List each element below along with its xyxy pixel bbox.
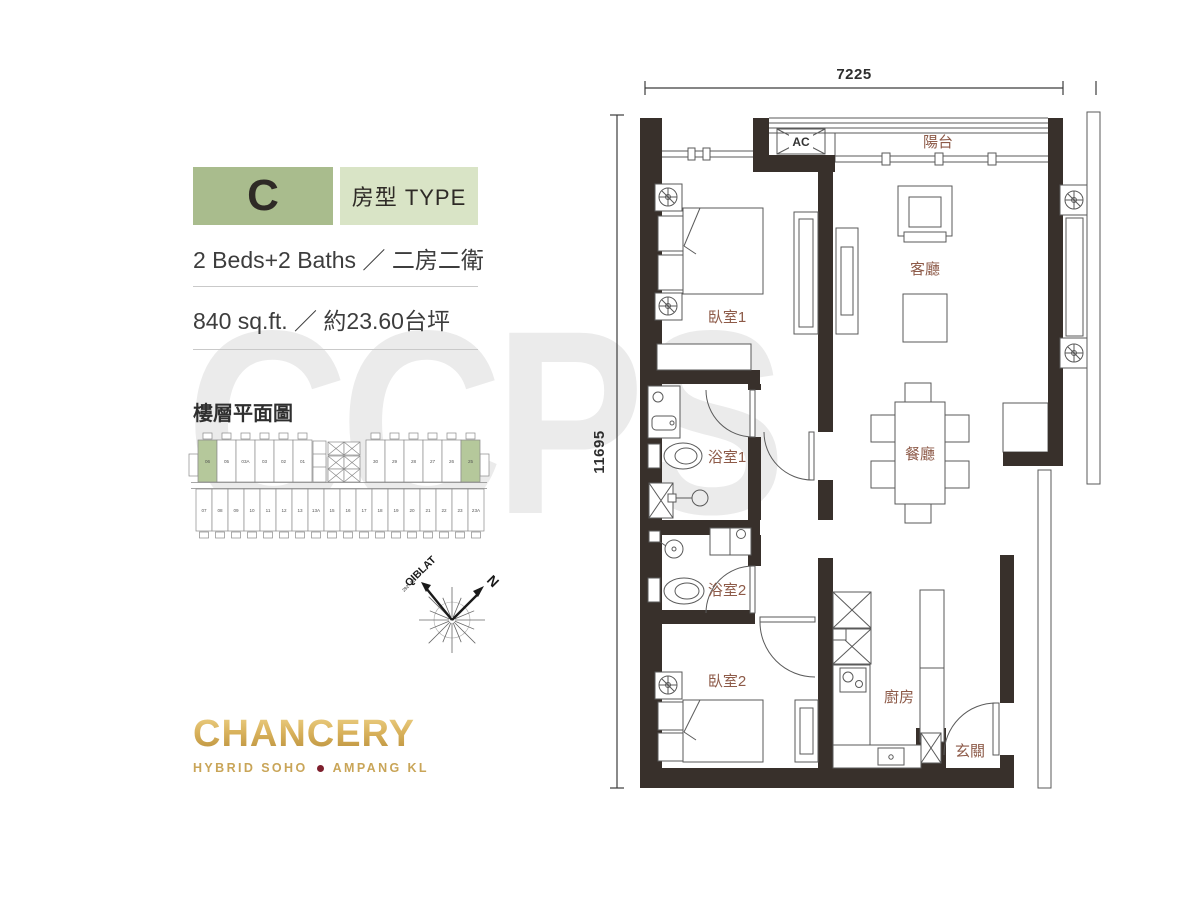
svg-text:20: 20 bbox=[409, 508, 415, 513]
svg-text:13: 13 bbox=[297, 508, 303, 513]
keyplan-unit-27: 27 bbox=[423, 433, 442, 482]
svg-text:19: 19 bbox=[393, 508, 399, 513]
svg-text:08: 08 bbox=[217, 508, 223, 513]
unit-type-badges: C 房型 TYPE bbox=[193, 167, 478, 225]
keyplan-unit-05: 05 bbox=[217, 433, 236, 482]
qiblat-arrow: QIBLAT 292° 32' bbox=[401, 554, 452, 620]
keyplan-unit-03A: 03A bbox=[236, 433, 255, 482]
keyplan-unit-01: 01 bbox=[293, 433, 312, 482]
room-label-living: 客廳 bbox=[910, 260, 940, 278]
room-label-bath2: 浴室2 bbox=[708, 582, 746, 599]
keyplan-unit-22: 22 bbox=[436, 489, 452, 538]
keyplan-unit-30: 30 bbox=[366, 433, 385, 482]
keyplan-lift-core bbox=[313, 441, 360, 482]
tagline-dot-icon bbox=[317, 765, 324, 772]
bedroom1-furniture bbox=[655, 184, 818, 370]
svg-text:09: 09 bbox=[233, 508, 239, 513]
room-label-foyer: 玄關 bbox=[955, 743, 985, 760]
svg-text:03: 03 bbox=[262, 459, 268, 464]
area-text: 840 sq.ft. ／ 約23.60台坪 bbox=[193, 302, 450, 336]
svg-text:18: 18 bbox=[377, 508, 383, 513]
svg-text:07: 07 bbox=[201, 508, 207, 513]
keyplan-unit-06: 06 bbox=[198, 433, 217, 482]
svg-text:23: 23 bbox=[457, 508, 463, 513]
keyplan-unit-18: 18 bbox=[372, 489, 388, 538]
svg-text:05: 05 bbox=[224, 459, 230, 464]
keyplan-unit-23A: 23A bbox=[468, 489, 484, 538]
windows-and-louvres bbox=[662, 118, 1048, 165]
dimension-height: 11695 bbox=[591, 430, 608, 473]
svg-text:25: 25 bbox=[468, 459, 474, 464]
north-label: N bbox=[484, 572, 502, 590]
svg-text:26: 26 bbox=[449, 459, 455, 464]
keyplan-unit-12: 12 bbox=[276, 489, 292, 538]
svg-text:13A: 13A bbox=[312, 508, 321, 513]
bathroom1-fixtures bbox=[648, 386, 708, 518]
room-label-bedroom2: 臥室2 bbox=[708, 673, 746, 690]
svg-text:23A: 23A bbox=[472, 508, 481, 513]
unit-type-letter-badge: C bbox=[193, 167, 333, 225]
room-label-balcony: 陽台 bbox=[923, 134, 953, 151]
keyplan-unit-21: 21 bbox=[420, 489, 436, 538]
keyplan-unit-02: 02 bbox=[274, 433, 293, 482]
unit-type-label-badge: 房型 TYPE bbox=[340, 167, 478, 225]
keyplan-diagram: 060503A030201302928272625070809101112131… bbox=[188, 430, 490, 548]
svg-text:22: 22 bbox=[441, 508, 447, 513]
keyplan-unit-29: 29 bbox=[385, 433, 404, 482]
svg-text:10: 10 bbox=[249, 508, 255, 513]
compass-rose: N QIBLAT 292° 32' bbox=[398, 548, 502, 666]
keyplan-unit-09: 09 bbox=[228, 489, 244, 538]
brand-logo: CHANCERY HYBRID SOHO AMPANG KL bbox=[193, 713, 429, 775]
keyplan-title: 樓層平面圖 bbox=[193, 397, 293, 426]
keyplan-unit-10: 10 bbox=[244, 489, 260, 538]
tagline-left: HYBRID SOHO bbox=[193, 761, 308, 775]
keyplan-unit-26: 26 bbox=[442, 433, 461, 482]
room-label-kitchen: 廚房 bbox=[884, 688, 914, 706]
svg-text:28: 28 bbox=[411, 459, 417, 464]
keyplan-unit-28: 28 bbox=[404, 433, 423, 482]
room-label-bath1: 浴室1 bbox=[708, 449, 746, 466]
svg-text:12: 12 bbox=[281, 508, 287, 513]
floor-plan: 7225 11695 bbox=[580, 55, 1120, 810]
brand-tagline: HYBRID SOHO AMPANG KL bbox=[193, 761, 429, 775]
keyplan-unit-11: 11 bbox=[260, 489, 276, 538]
keyplan-unit-08: 08 bbox=[212, 489, 228, 538]
svg-text:30: 30 bbox=[373, 459, 379, 464]
keyplan-unit-13: 13 bbox=[292, 489, 308, 538]
room-label-bedroom1: 臥室1 bbox=[708, 309, 746, 326]
keyplan-unit-17: 17 bbox=[356, 489, 372, 538]
svg-text:15: 15 bbox=[329, 508, 335, 513]
svg-text:11: 11 bbox=[266, 508, 271, 513]
dimension-width: 7225 bbox=[836, 66, 871, 83]
svg-text:03A: 03A bbox=[241, 459, 250, 464]
keyplan-unit-19: 19 bbox=[388, 489, 404, 538]
svg-text:16: 16 bbox=[345, 508, 351, 513]
divider-line bbox=[193, 286, 478, 287]
keyplan-unit-13A: 13A bbox=[308, 489, 324, 538]
svg-text:27: 27 bbox=[430, 459, 436, 464]
keyplan-unit-23: 23 bbox=[452, 489, 468, 538]
keyplan-unit-25: 25 bbox=[461, 433, 480, 482]
keyplan-unit-20: 20 bbox=[404, 489, 420, 538]
beds-baths-text: 2 Beds+2 Baths ／ 二房二衛 bbox=[193, 241, 484, 275]
brand-name: CHANCERY bbox=[193, 713, 429, 756]
svg-text:02: 02 bbox=[281, 459, 287, 464]
svg-text:21: 21 bbox=[425, 508, 431, 513]
keyplan-unit-03: 03 bbox=[255, 433, 274, 482]
keyplan-unit-16: 16 bbox=[340, 489, 356, 538]
keyplan-unit-15: 15 bbox=[324, 489, 340, 538]
ac-label: AC bbox=[792, 135, 810, 149]
svg-text:01: 01 bbox=[300, 459, 306, 464]
svg-text:29: 29 bbox=[392, 459, 398, 464]
floorplan-page: CCPS C 房型 TYPE 2 Beds+2 Baths ／ 二房二衛 840… bbox=[0, 0, 1200, 900]
divider-line bbox=[193, 349, 478, 350]
room-label-dining: 餐廳 bbox=[905, 445, 935, 463]
svg-text:17: 17 bbox=[361, 508, 367, 513]
north-arrow: N bbox=[452, 572, 502, 620]
kitchen-fixtures bbox=[833, 590, 944, 768]
svg-text:06: 06 bbox=[205, 459, 211, 464]
tagline-right: AMPANG KL bbox=[333, 761, 429, 775]
keyplan-unit-07: 07 bbox=[196, 489, 212, 538]
